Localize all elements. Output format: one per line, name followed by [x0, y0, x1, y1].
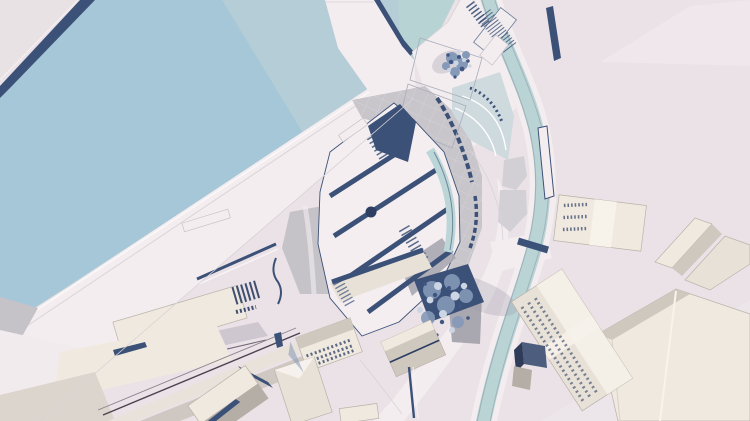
roof-oculus [366, 207, 377, 218]
gray-tower [512, 366, 532, 390]
model-viewport[interactable] [0, 0, 750, 421]
slate-cube-top [522, 342, 547, 368]
site-model-render [0, 0, 750, 421]
